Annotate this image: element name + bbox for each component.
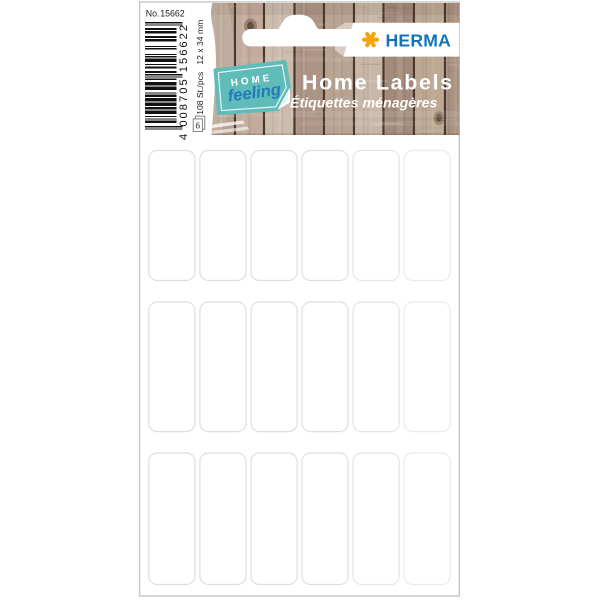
svg-text:Étiquettes ménagères: Étiquettes ménagères [290, 95, 438, 112]
svg-text:6: 6 [195, 121, 200, 131]
svg-text:HERMA: HERMA [386, 30, 452, 50]
svg-text:4 008705 156622: 4 008705 156622 [178, 23, 190, 140]
svg-text:108 St./pcs 12 x 34 mm: 108 St./pcs 12 x 34 mm [195, 20, 205, 115]
svg-text:No. 15662: No. 15662 [146, 8, 185, 18]
svg-text:Home Labels: Home Labels [302, 71, 454, 95]
